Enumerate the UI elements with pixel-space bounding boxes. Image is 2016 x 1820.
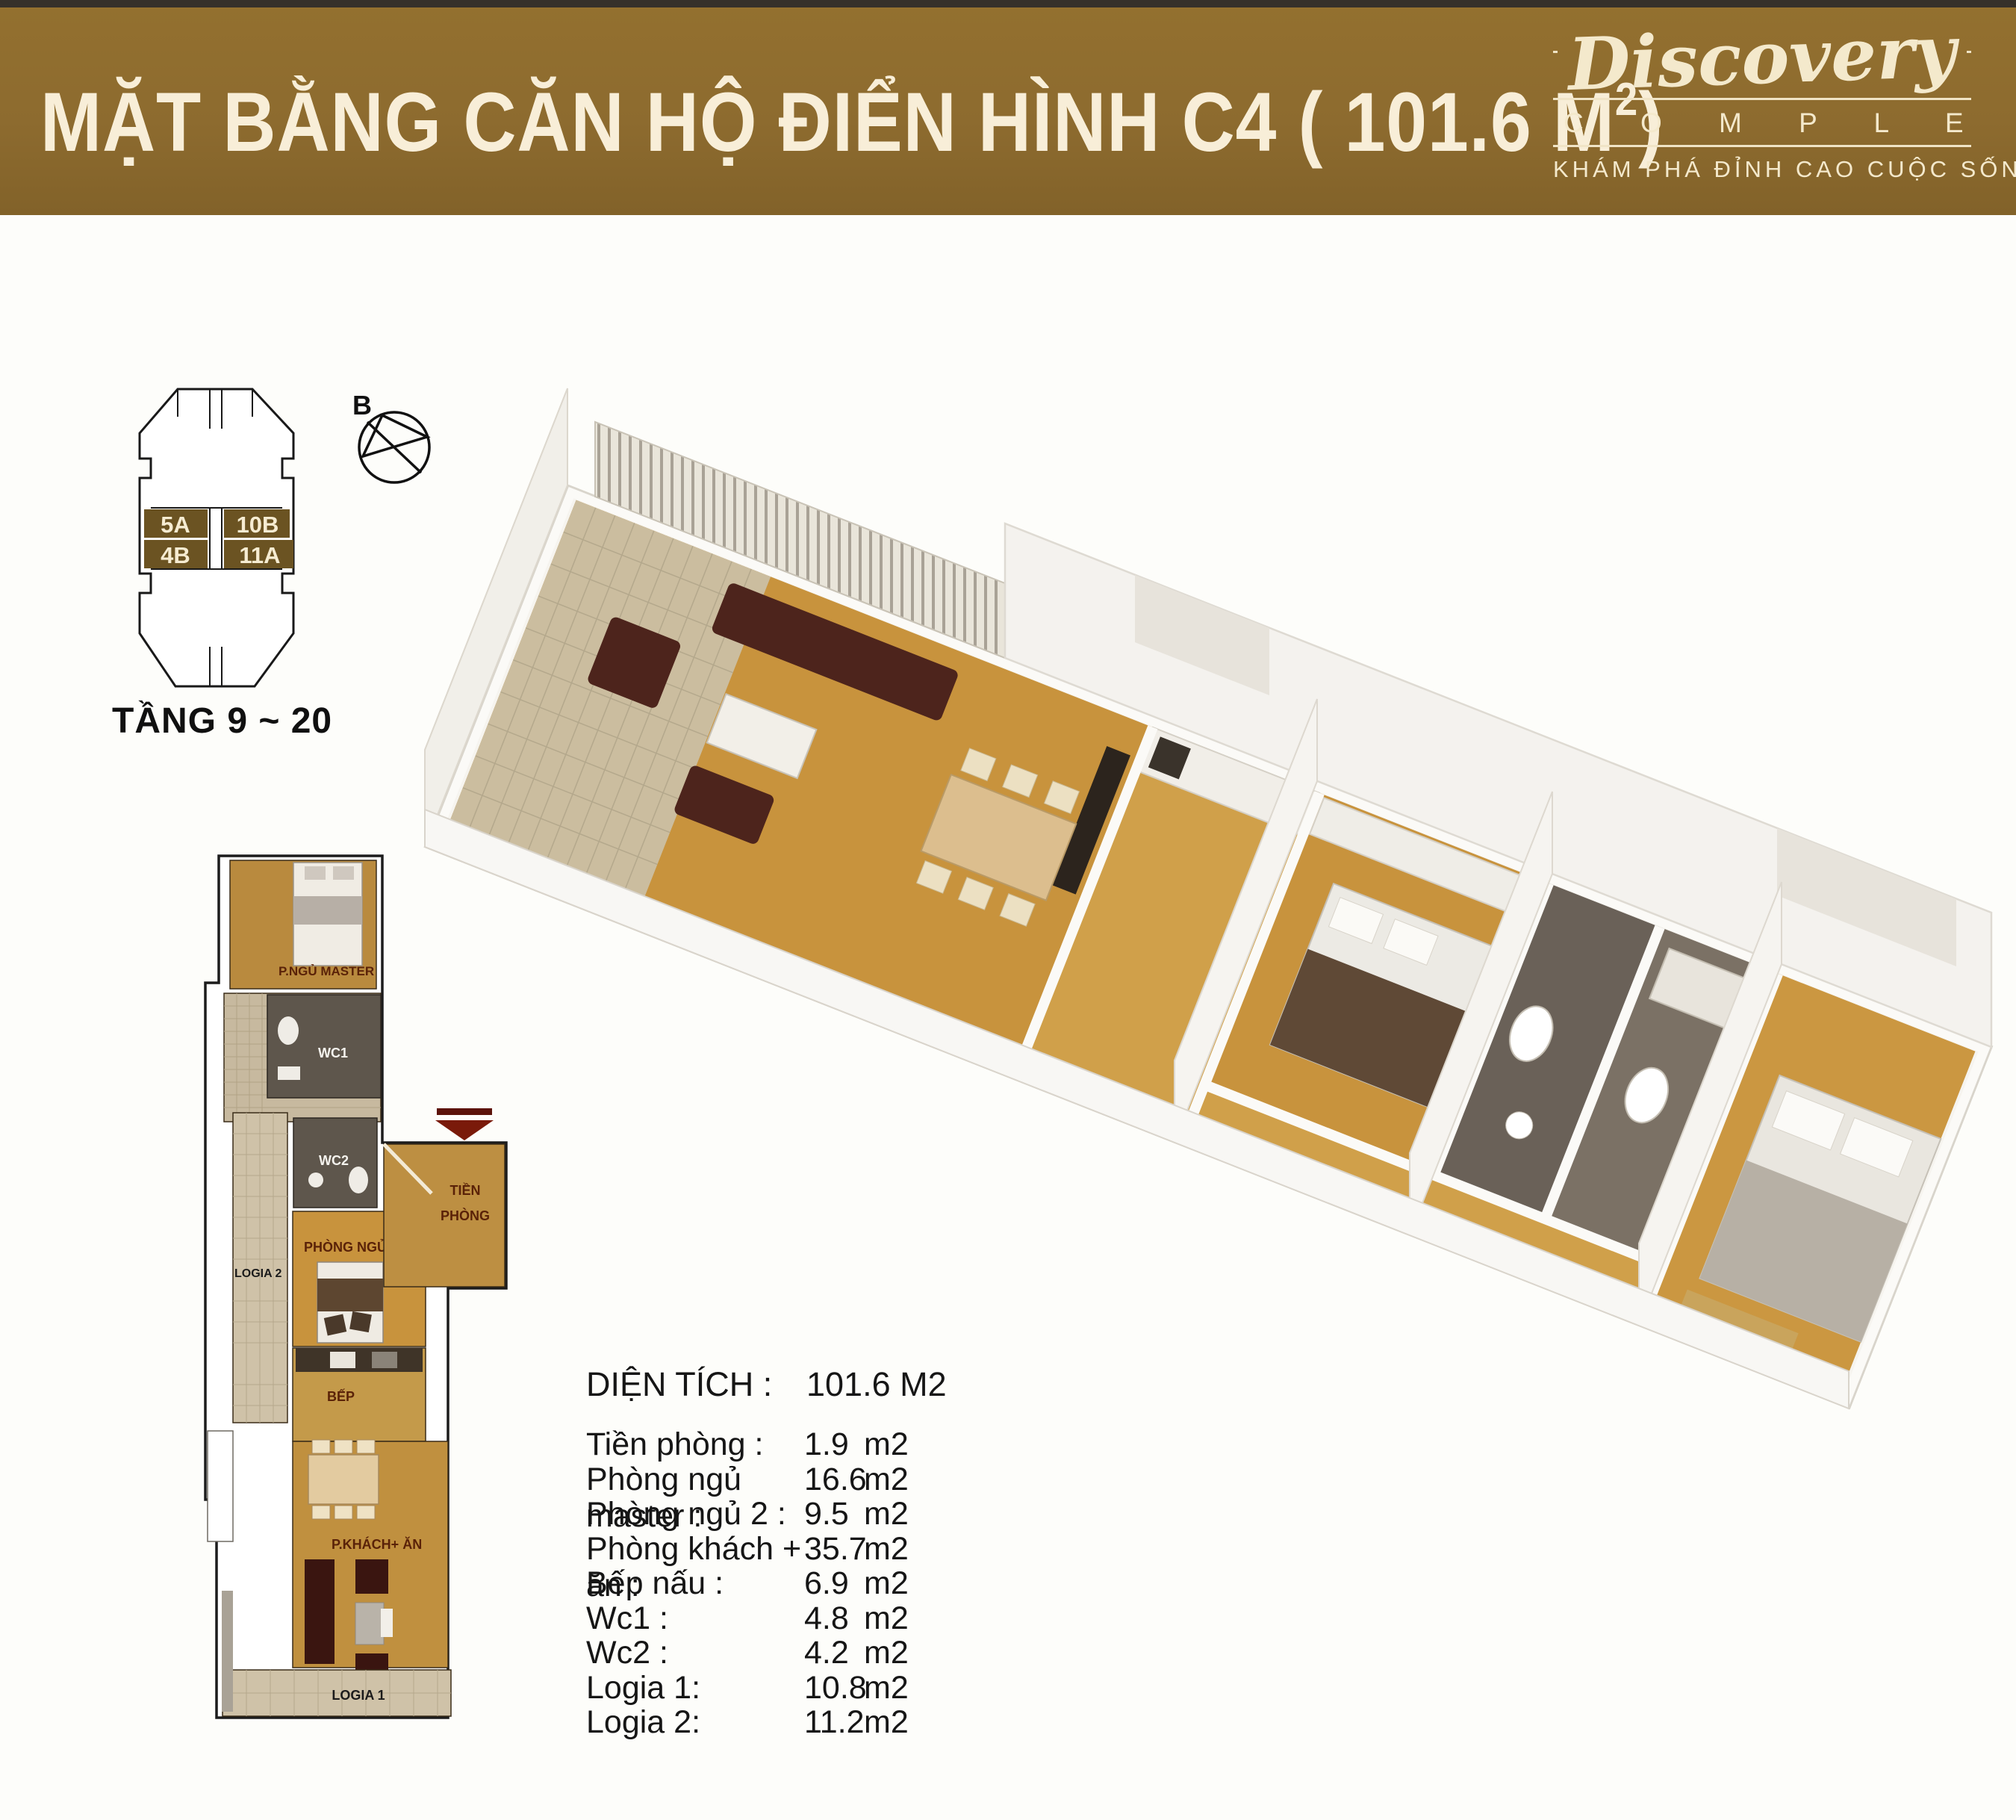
row-value: 11.2 bbox=[804, 1704, 850, 1741]
living-tv bbox=[381, 1609, 393, 1637]
row-label: Wc2 : bbox=[586, 1635, 804, 1671]
armchair-3d bbox=[586, 615, 682, 709]
dining-table bbox=[308, 1455, 379, 1504]
bedroom2-wardrobe-3d bbox=[1310, 798, 1539, 919]
master-bed-3d bbox=[1699, 1075, 1941, 1342]
area-header-label: DIỆN TÍCH : bbox=[586, 1365, 780, 1404]
row-unit: m2 bbox=[864, 1635, 909, 1671]
row-value: 1.9 bbox=[804, 1426, 850, 1463]
row-unit: m2 bbox=[864, 1704, 909, 1741]
plant-3d bbox=[1260, 831, 1295, 866]
sofa-short-3d bbox=[673, 764, 775, 845]
master-bed-blanket bbox=[293, 896, 362, 925]
dining-chair bbox=[335, 1506, 352, 1519]
interior-walls-3d bbox=[1018, 727, 1779, 1316]
row-unit: m2 bbox=[864, 1426, 909, 1463]
area-header-value: 101.6 M2 bbox=[806, 1365, 947, 1404]
table-row: Bếp nấu : 6.9 m2 bbox=[586, 1565, 1079, 1600]
wall-far-3d bbox=[1005, 524, 1991, 1047]
row-value: 35.7 bbox=[804, 1531, 850, 1568]
entrance-arrow bbox=[435, 1120, 494, 1140]
row-value: 4.2 bbox=[804, 1635, 850, 1671]
bedroom2-cover-3d bbox=[1270, 949, 1481, 1114]
room-wc1-label: WC1 bbox=[318, 1046, 348, 1060]
tv-unit-3d bbox=[1052, 746, 1130, 895]
dining-chair bbox=[312, 1506, 330, 1519]
ac-ledge bbox=[208, 1431, 233, 1541]
row-label: Phòng ngủ 2 : bbox=[586, 1496, 804, 1532]
row-unit: m2 bbox=[864, 1462, 909, 1498]
row-unit: m2 bbox=[864, 1565, 909, 1602]
scan-edge-strip bbox=[0, 0, 2016, 7]
room-hall-label-line1: TIỀN bbox=[449, 1182, 480, 1198]
entrance-arrow-bar bbox=[437, 1108, 492, 1115]
floor-plan-2d: P.NGỦ MASTER WC1 WC2 LOGIA 2 PHÒNG NGỦ 2… bbox=[134, 842, 530, 1731]
kitchen-appliance-3d bbox=[1148, 736, 1191, 779]
logo-script-row: Discovery bbox=[1553, 21, 1971, 96]
area-table: DIỆN TÍCH : 101.6 M2 Tiền phòng : 1.9 m2… bbox=[586, 1365, 1079, 1739]
living-sofa-short bbox=[355, 1559, 388, 1594]
row-label: Wc1 : bbox=[586, 1600, 804, 1637]
kitchen-counter bbox=[296, 1348, 423, 1372]
wc1-floor-3d bbox=[1434, 883, 1660, 1219]
plate-3d bbox=[425, 485, 1991, 1408]
row-value: 6.9 bbox=[804, 1565, 850, 1602]
logo-tagline: KHÁM PHÁ ĐỈNH CAO CUỘC SỐNG bbox=[1553, 156, 1971, 183]
discovery-complex-logo: Discovery C O M P L E X KHÁM PHÁ ĐỈNH CA… bbox=[1553, 21, 1971, 183]
unit-4b-label: 4B bbox=[161, 542, 190, 568]
floor-plan-3d bbox=[388, 239, 2016, 1509]
coffee-table-3d bbox=[707, 694, 817, 778]
wc1-sink bbox=[278, 1066, 300, 1080]
unit-10b-label: 10B bbox=[237, 512, 279, 538]
dining-chair bbox=[312, 1440, 330, 1453]
master-bench-3d bbox=[1679, 1290, 1799, 1355]
wc2-toilet-3d bbox=[1617, 1061, 1676, 1129]
table-row: Wc1 : 4.8 m2 bbox=[586, 1600, 1079, 1636]
wc2-tub-3d bbox=[1649, 948, 1767, 1037]
dining-chair bbox=[357, 1440, 375, 1453]
page-title: MẶT BẰNG CĂN HỘ ĐIỂN HÌNH C4 ( 101.6 M2) bbox=[40, 73, 1664, 170]
building-key-plan: 5A 10B 4B 11A bbox=[137, 387, 298, 690]
living-tv-table bbox=[355, 1603, 384, 1644]
perimeter-wall-3d bbox=[432, 491, 1985, 1402]
logia-railing-3d bbox=[595, 422, 1005, 658]
table-row: Phòng ngủ 2 : 9.5 m2 bbox=[586, 1496, 1079, 1531]
table-row: Wc2 : 4.2 m2 bbox=[586, 1635, 1079, 1670]
wall-master-3d bbox=[1639, 882, 1782, 1326]
living-sofa-long bbox=[305, 1559, 335, 1664]
dining-chair bbox=[357, 1506, 375, 1519]
row-label: Tiền phòng : bbox=[586, 1426, 804, 1463]
area-table-rows: Tiền phòng : 1.9 m2 Phòng ngủ master : 1… bbox=[586, 1426, 1079, 1739]
dining-chair-3d bbox=[1000, 894, 1035, 927]
bedroom2-bed-3d bbox=[1270, 883, 1508, 1113]
sofa-long-3d bbox=[711, 582, 959, 722]
bedroom2-pillow-2 bbox=[349, 1311, 372, 1332]
wc2-floor-3d bbox=[1545, 927, 1778, 1265]
plate-base bbox=[425, 485, 1991, 1408]
room-logia1-label: LOGIA 1 bbox=[332, 1688, 385, 1703]
wc1-sink-3d bbox=[1502, 1108, 1537, 1143]
row-unit: m2 bbox=[864, 1670, 909, 1706]
row-label: Logia 2: bbox=[586, 1704, 804, 1741]
wall-far-window-3d bbox=[1135, 575, 1269, 695]
wall-far-window-3d-2 bbox=[1777, 828, 1956, 966]
logo-rule-left bbox=[1553, 51, 1558, 53]
logo-script-text: Discovery bbox=[1567, 14, 1958, 103]
perimeter-edge-3d bbox=[426, 485, 1991, 1408]
table-row: Phòng ngủ master : 16.6 m2 bbox=[586, 1462, 1079, 1497]
master-pillow-3d bbox=[1841, 1118, 1913, 1177]
kitchen-counter-3d bbox=[1136, 727, 1319, 836]
page-title-text: MẶT BẰNG CĂN HỘ ĐIỂN HÌNH C4 ( 101.6 M bbox=[40, 75, 1615, 169]
compass-north-label: B bbox=[352, 390, 372, 420]
dining-chair bbox=[335, 1440, 352, 1453]
row-value: 4.8 bbox=[804, 1600, 850, 1637]
master-bed-pillow bbox=[305, 866, 326, 880]
dining-chair-3d bbox=[958, 878, 993, 910]
dining-chair-3d bbox=[916, 861, 951, 894]
room-living-label: P.KHÁCH+ ĂN bbox=[332, 1536, 422, 1552]
wc1-toilet-3d bbox=[1502, 1000, 1561, 1068]
dining-chair-3d bbox=[961, 748, 996, 781]
floors-range-label: TẦNG 9 ~ 20 bbox=[112, 701, 381, 742]
living-floor-3d bbox=[441, 500, 1153, 1069]
corridor-floor-3d bbox=[1185, 1085, 1663, 1316]
logia1-planter-band bbox=[222, 1591, 233, 1712]
dining-chair-3d bbox=[1003, 765, 1038, 798]
wall-bath-3d bbox=[1410, 792, 1552, 1235]
room-logia2-label: LOGIA 2 bbox=[234, 1267, 282, 1280]
row-value: 16.6 bbox=[804, 1462, 850, 1498]
wc2-toilet bbox=[349, 1167, 368, 1193]
row-value: 10.8 bbox=[804, 1670, 850, 1706]
table-row: Logia 2: 11.2 m2 bbox=[586, 1704, 1079, 1739]
bedroom2-pillow-3d bbox=[1328, 898, 1383, 944]
master-floor-3d bbox=[1643, 974, 1976, 1394]
master-pillow-3d bbox=[1772, 1091, 1844, 1150]
table-row: Tiền phòng : 1.9 m2 bbox=[586, 1426, 1079, 1462]
area-table-header: DIỆN TÍCH : 101.6 M2 bbox=[586, 1365, 1079, 1404]
bedroom2-bed-cover bbox=[317, 1279, 383, 1311]
room-kitchen-label: BẾP bbox=[327, 1388, 355, 1404]
bedroom2-floor-3d bbox=[1204, 793, 1549, 1175]
wc2-sink bbox=[308, 1173, 323, 1187]
unit-11a-label: 11A bbox=[239, 542, 280, 568]
kitchen-stove bbox=[372, 1352, 397, 1368]
wc1-toilet bbox=[278, 1016, 299, 1045]
row-unit: m2 bbox=[864, 1496, 909, 1532]
row-unit: m2 bbox=[864, 1600, 909, 1637]
room-wc2-label: WC2 bbox=[319, 1153, 349, 1168]
master-blanket-3d bbox=[1699, 1160, 1907, 1341]
wall-near-3d bbox=[425, 810, 1849, 1409]
kitchen-sink bbox=[330, 1352, 355, 1368]
logo-rule-right bbox=[1967, 51, 1971, 53]
row-label: Logia 1: bbox=[586, 1670, 804, 1706]
row-value: 9.5 bbox=[804, 1496, 850, 1532]
row-unit: m2 bbox=[864, 1531, 909, 1568]
table-row: Logia 1: 10.8 m2 bbox=[586, 1670, 1079, 1705]
master-bed-pillow-2 bbox=[333, 866, 354, 880]
table-row: Phòng khách + ăn : 35.7 m2 bbox=[586, 1531, 1079, 1566]
wall-bedroom2-3d bbox=[1175, 699, 1317, 1143]
kitchen-floor-3d bbox=[1018, 727, 1320, 1135]
compass-icon: B bbox=[335, 385, 447, 497]
header-banner: MẶT BẰNG CĂN HỘ ĐIỂN HÌNH C4 ( 101.6 M2)… bbox=[0, 7, 2016, 215]
unit-5a-label: 5A bbox=[161, 512, 190, 538]
bedroom2-pillow-3d bbox=[1384, 919, 1438, 966]
room-master-label: P.NGỦ MASTER bbox=[279, 964, 374, 978]
row-label: Bếp nấu : bbox=[586, 1565, 804, 1602]
room-hall-label-line2: PHÒNG bbox=[441, 1208, 490, 1223]
dining-table-3d bbox=[921, 774, 1077, 900]
dining-chair-3d bbox=[1044, 781, 1079, 814]
